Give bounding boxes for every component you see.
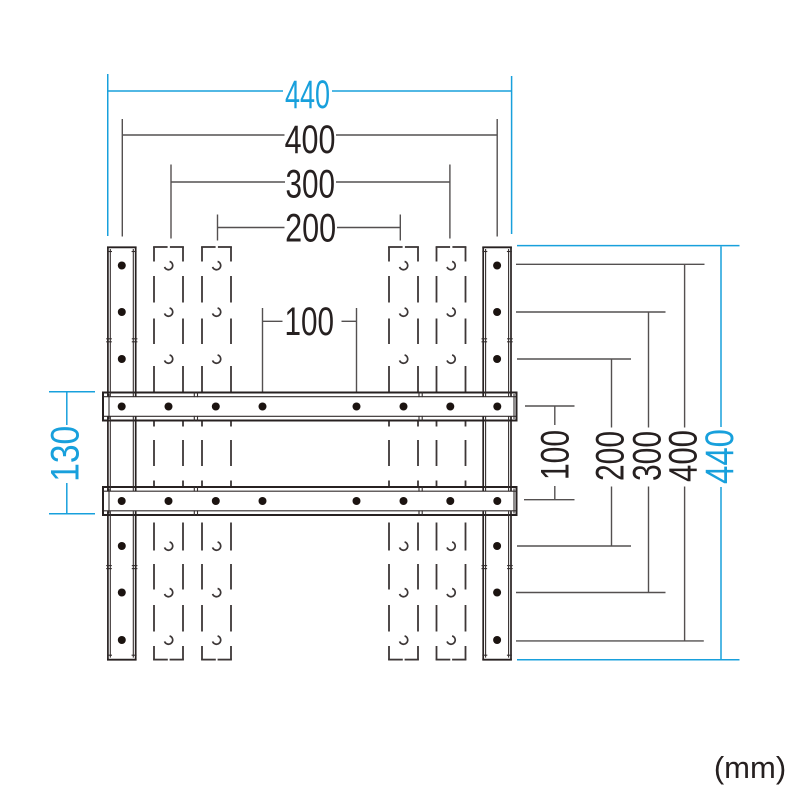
svg-text:440: 440 xyxy=(698,429,742,484)
svg-text:400: 400 xyxy=(285,118,336,162)
svg-text:100: 100 xyxy=(285,300,335,344)
svg-text:440: 440 xyxy=(285,73,330,117)
svg-text:(mm): (mm) xyxy=(714,750,786,785)
svg-text:130: 130 xyxy=(44,426,88,482)
svg-text:300: 300 xyxy=(286,163,336,207)
svg-text:100: 100 xyxy=(534,430,578,480)
svg-text:200: 200 xyxy=(285,207,336,251)
